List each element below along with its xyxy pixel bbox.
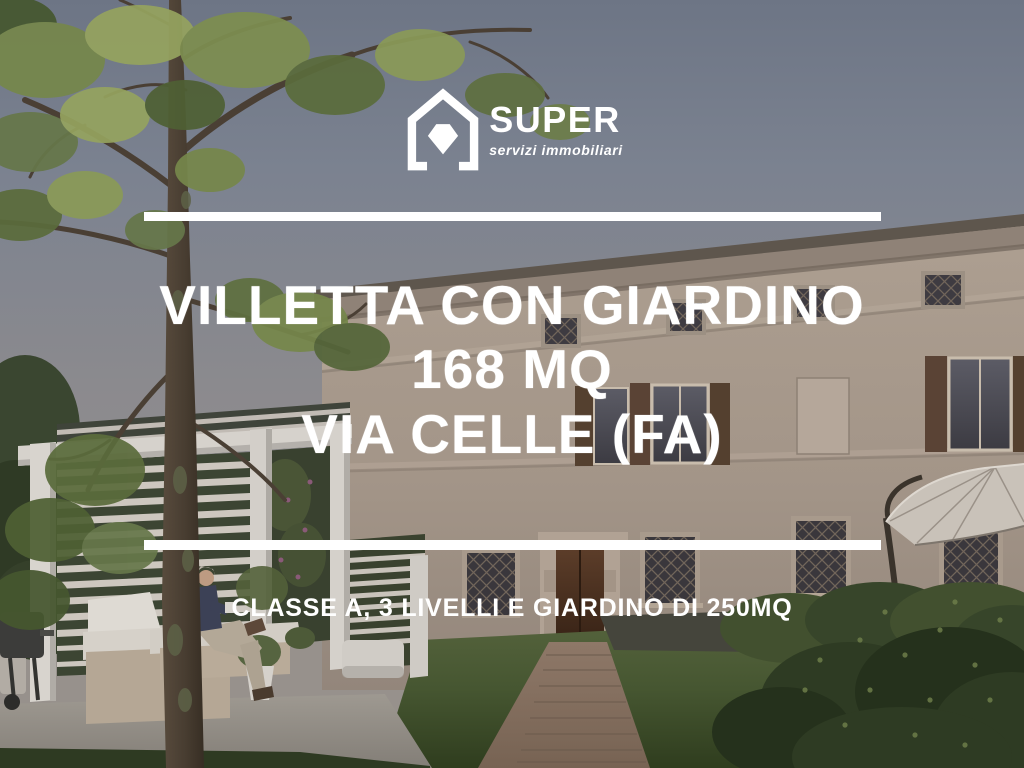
- divider-bottom: [144, 540, 881, 550]
- real-estate-poster: SUPER servizi immobiliari VILLETTA CON G…: [0, 0, 1024, 768]
- divider-top: [144, 212, 881, 221]
- overlay-content: SUPER servizi immobiliari VILLETTA CON G…: [0, 0, 1024, 768]
- title-line-3: VIA CELLE (FA): [159, 402, 864, 466]
- title-line-1: VILLETTA CON GIARDINO: [159, 273, 864, 337]
- title-line-2: 168 MQ: [159, 337, 864, 401]
- logo: SUPER servizi immobiliari: [401, 88, 623, 172]
- house-gem-icon: [401, 88, 485, 172]
- logo-tagline: servizi immobiliari: [489, 142, 623, 158]
- listing-subtitle: CLASSE A, 3 LIVELLI E GIARDINO DI 250MQ: [232, 594, 793, 623]
- logo-text: SUPER servizi immobiliari: [489, 102, 623, 158]
- listing-title: VILLETTA CON GIARDINO 168 MQ VIA CELLE (…: [159, 273, 864, 466]
- logo-brand: SUPER: [489, 102, 621, 138]
